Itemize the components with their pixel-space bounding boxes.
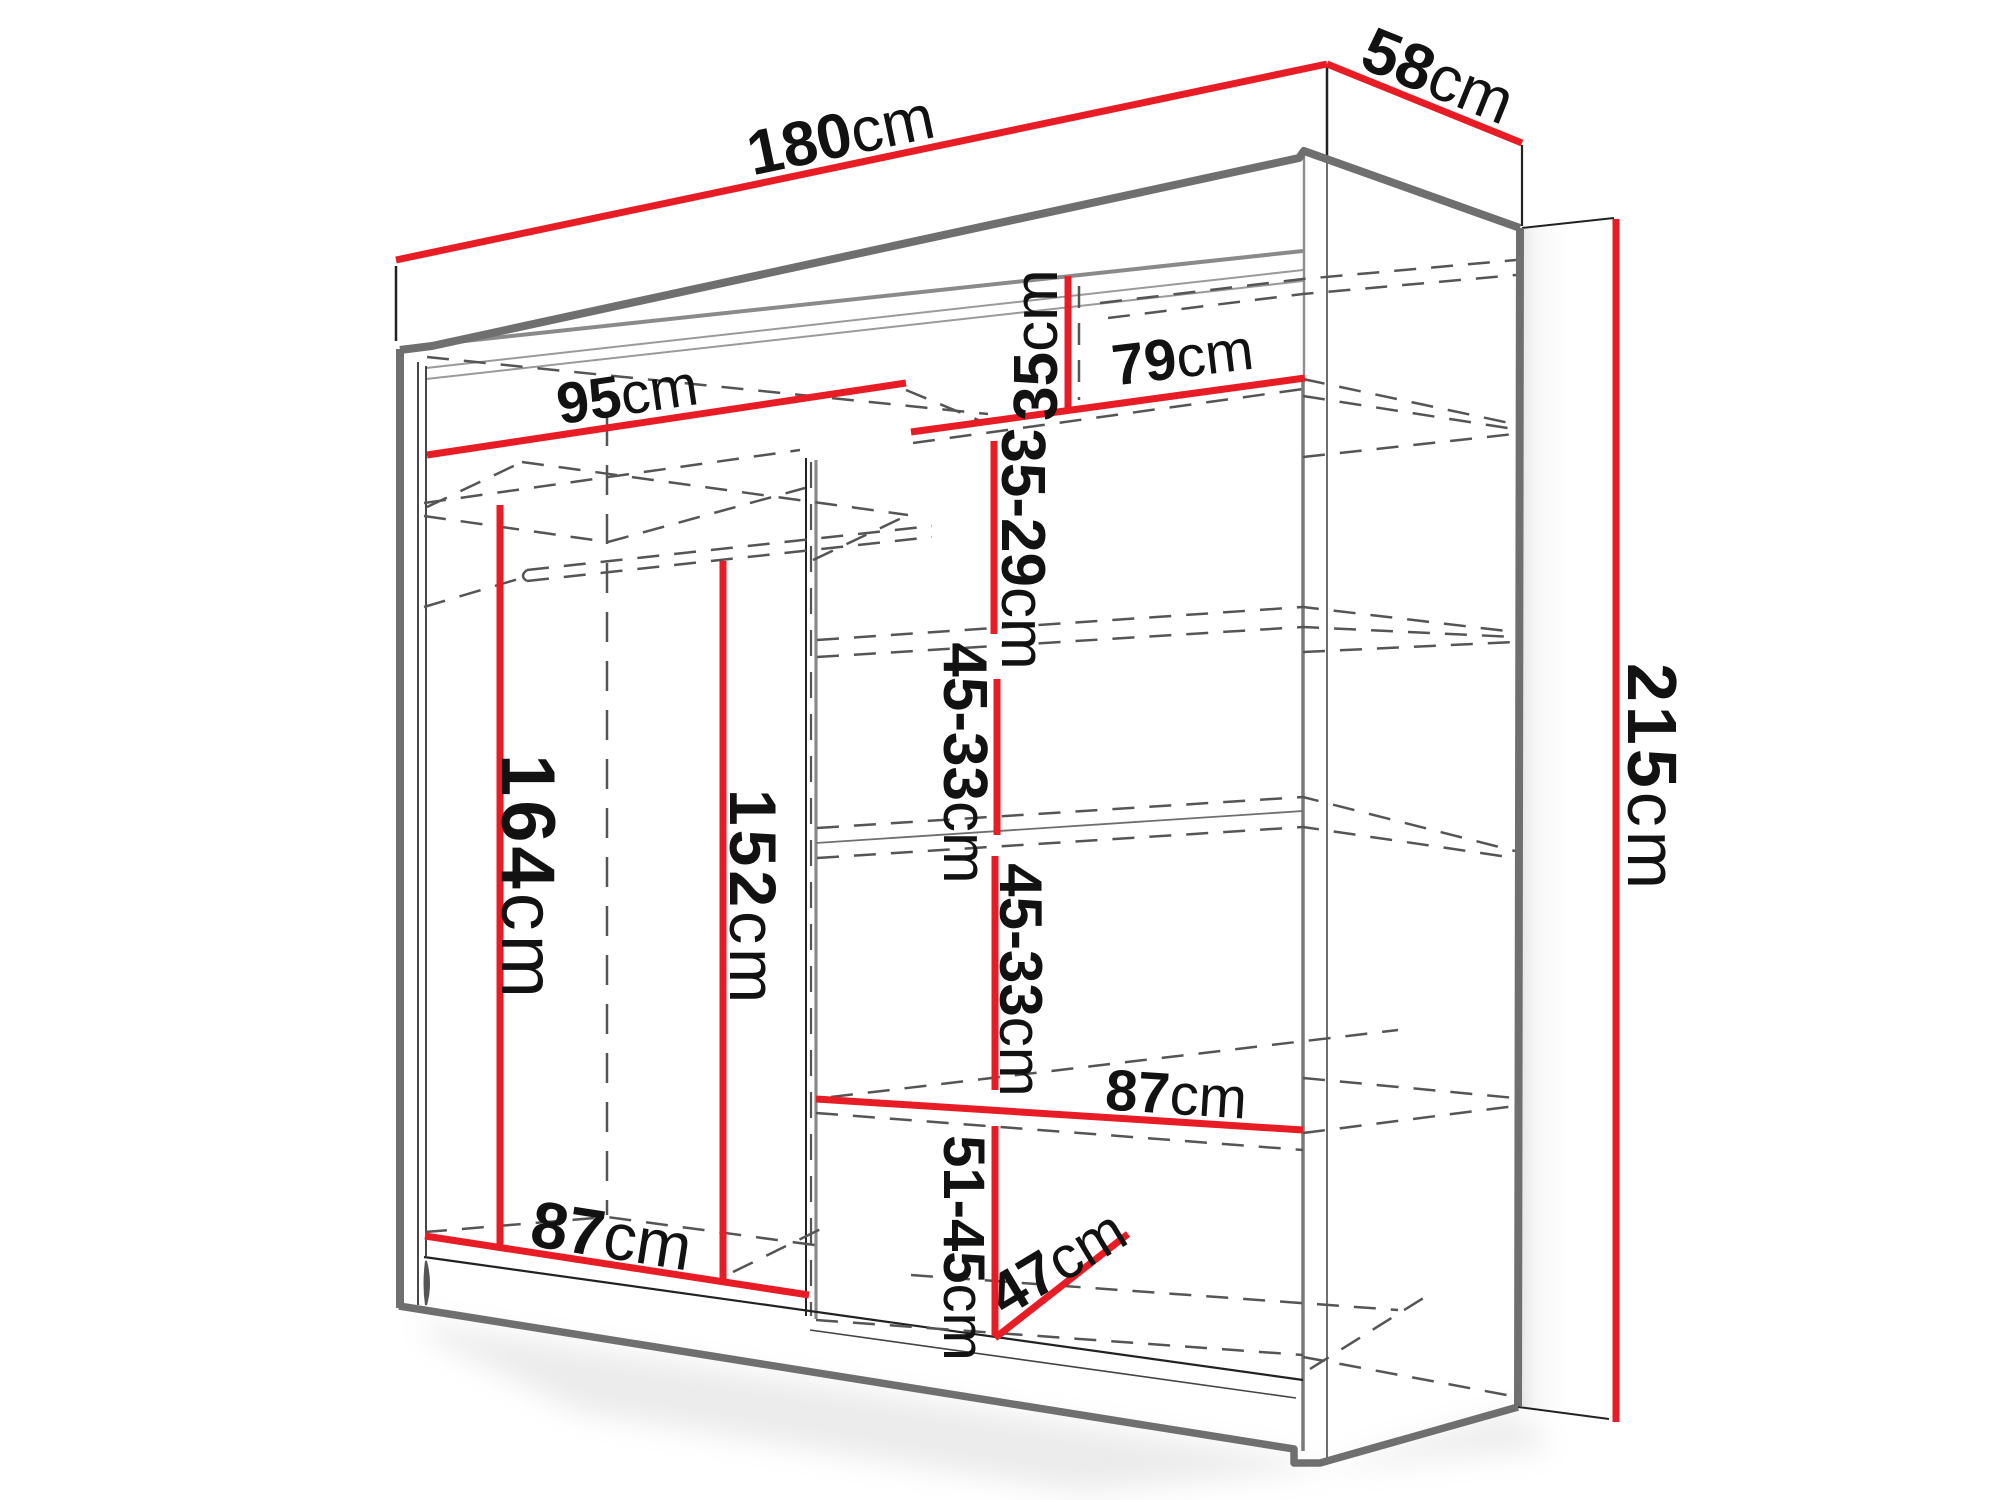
svg-text:215cm: 215cm (1613, 663, 1691, 893)
svg-text:45-33cm: 45-33cm (930, 642, 999, 883)
svg-text:51-45cm: 51-45cm (931, 1135, 996, 1361)
svg-text:87cm: 87cm (1103, 1058, 1249, 1132)
svg-text:45-33cm: 45-33cm (987, 863, 1054, 1096)
svg-text:164cm: 164cm (485, 754, 570, 1002)
svg-text:35cm: 35cm (1002, 269, 1071, 421)
svg-text:35-29cm: 35-29cm (988, 428, 1057, 669)
svg-text:152cm: 152cm (716, 789, 790, 1007)
